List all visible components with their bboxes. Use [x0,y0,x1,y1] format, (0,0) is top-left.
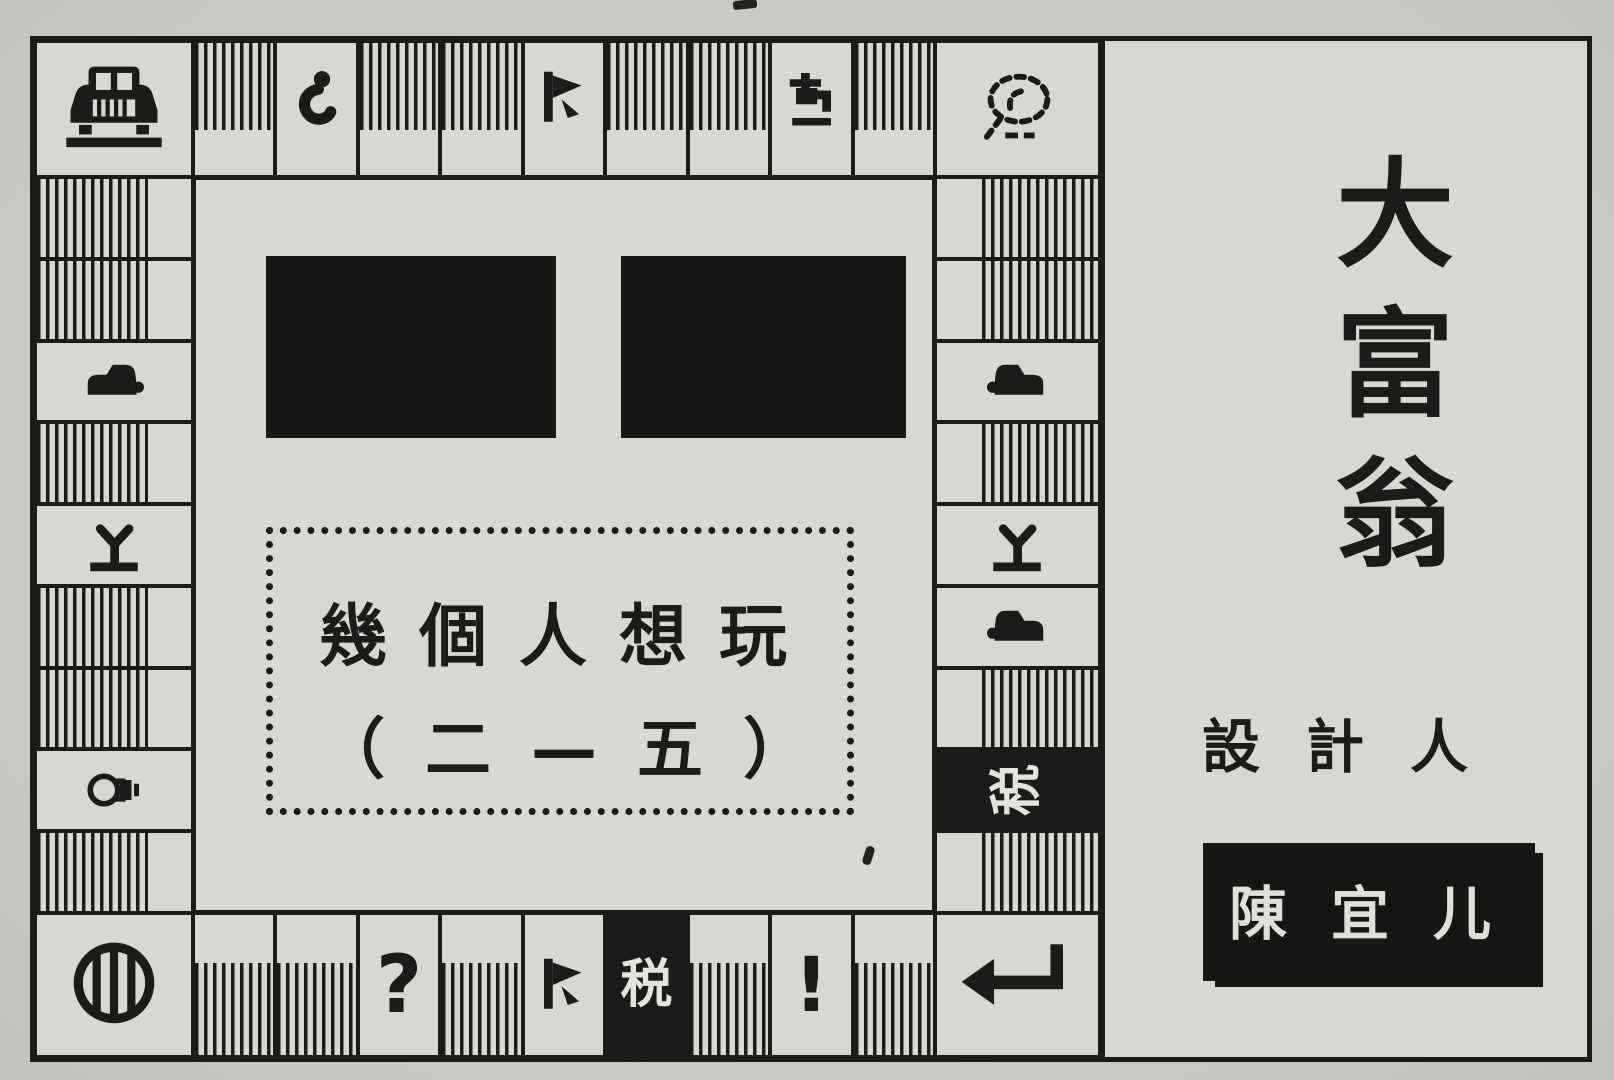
car-left-icon [84,351,144,411]
top-property-cell [688,41,770,177]
hatch-stripes [442,43,520,130]
hatch-stripes [982,670,1098,748]
tax-cell: 税 [605,913,687,1057]
plant-icon [987,515,1047,575]
right-property-cell [935,259,1100,341]
question-cell: ? [358,913,440,1057]
car-left-cell [35,341,193,423]
hatch-stripes [37,424,148,502]
flag-icon [534,68,594,128]
question-glyph: ? [376,945,422,1025]
bottom-property-cell [193,913,275,1057]
designer-label: 設計人 [1202,700,1514,784]
title-char-3: 翁 [1318,440,1472,590]
car-front-icon [61,61,167,157]
car-right-cell [935,341,1100,423]
hatch-stripes [37,261,148,339]
hatch-stripes [37,670,148,748]
car-front-cell [35,41,193,177]
top-property-cell [440,41,522,177]
flag-cell [523,913,605,1057]
top-property-cell [358,41,440,177]
right-property-cell [935,668,1100,750]
hatch-stripes [277,963,355,1055]
dialog-question-text: 幾個人想玩 [319,582,847,694]
bottom-property-cell [440,913,522,1057]
bulb-icon [84,760,144,820]
black-panel-left [266,256,556,438]
hatch-stripes [690,963,768,1055]
bulb-cell [35,749,193,831]
bottom-property-cell [275,913,357,1057]
left-property-cell [35,177,193,259]
hatch-stripes [442,963,520,1055]
hook-icon [287,68,347,128]
ink-speck [733,0,758,10]
tax-glyph: 税 [620,959,672,1011]
hatch-stripes [360,43,438,130]
hatch-stripes [982,179,1098,257]
flag-cell [523,41,605,177]
top-property-cell [193,41,275,177]
hatch-stripes [982,833,1098,911]
designer-name-plate: 陳宜儿 [1203,843,1535,981]
left-property-cell [35,831,193,913]
hook-cell [275,41,357,177]
return-arrow-icon [959,938,1075,1032]
hatch-stripes [982,424,1098,502]
hatch-stripes [195,43,273,130]
title-char-2: 富 [1318,290,1472,440]
player-count-dialog[interactable]: 幾個人想玩 （二—五） [266,527,854,815]
game-title: 大 富 翁 [1318,140,1472,590]
barrel-cell [35,913,193,1057]
left-property-cell [35,422,193,504]
bottom-property-cell [853,913,935,1057]
exclaim-glyph: ! [794,947,829,1023]
return-arrow-cell [935,913,1100,1057]
black-panel-right [621,256,906,438]
hatch-stripes [37,588,148,666]
board-center: 幾個人想玩 （二—五） [193,177,935,913]
barrel-icon [63,934,165,1036]
title-char-1: 大 [1318,140,1472,290]
hatch-stripes [690,43,768,130]
tap-cell [770,41,852,177]
hatch-stripes [607,43,685,130]
hatch-stripes [37,833,148,911]
game-board: 幾個人想玩 （二—五） ?税!税 [35,41,1105,1057]
hatch-stripes [855,963,933,1055]
ink-speck [861,845,875,866]
plant-icon [84,515,144,575]
hatch-stripes [195,963,273,1055]
left-property-cell [35,668,193,750]
car-right-cell [935,586,1100,668]
dialog-range-text: （二—五） [319,694,847,806]
left-property-cell [35,586,193,668]
car-right-icon [987,351,1047,411]
right-property-cell [935,831,1100,913]
car-right-icon [987,597,1047,657]
bottom-property-cell [688,913,770,1057]
bird-cell [935,41,1100,177]
plant-cell [935,504,1100,586]
flag-icon [534,955,594,1015]
left-property-cell [35,259,193,341]
exclaim-cell: ! [770,913,852,1057]
hatch-stripes [37,179,148,257]
hatch-stripes [982,261,1098,339]
right-property-cell [935,422,1100,504]
tax-rotated-cell: 税 [935,749,1100,831]
hatch-stripes [855,43,933,130]
plant-cell [35,504,193,586]
tax-rotated-glyph: 税 [991,764,1043,816]
right-property-cell [935,177,1100,259]
top-property-cell [605,41,687,177]
game-screen: 幾個人想玩 （二—五） ?税!税 大 富 翁 設計人 陳宜儿 [0,0,1614,1080]
tap-icon [781,68,841,128]
bird-icon [968,60,1066,158]
top-property-cell [853,41,935,177]
